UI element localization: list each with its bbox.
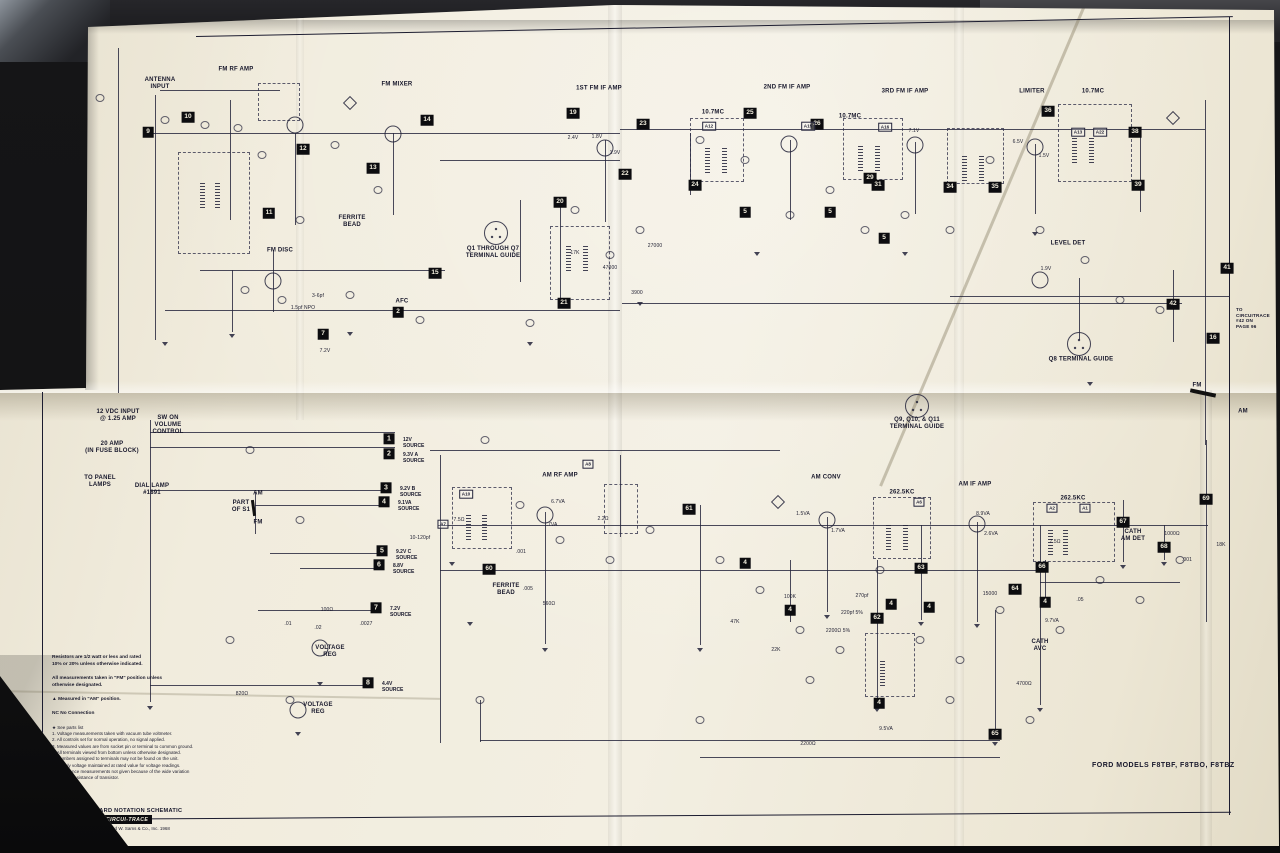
section-label-volt_reg: VOLTAGE REG bbox=[315, 645, 345, 659]
component-ref-circle bbox=[696, 716, 705, 724]
component-ref-circle bbox=[1096, 576, 1105, 584]
ground-symbol bbox=[467, 622, 473, 626]
wire bbox=[622, 303, 1182, 304]
circuitrace-callout: 60 bbox=[483, 564, 496, 575]
component-ref-circle bbox=[241, 286, 250, 294]
component-value: 1.7VA bbox=[831, 528, 845, 534]
terminal-guide-symbol bbox=[1067, 332, 1091, 356]
wire bbox=[1206, 440, 1207, 622]
photo-scene: ANTENNA INPUTFM RF AMPFM MIXER1ST FM IF … bbox=[0, 0, 1280, 853]
dashed-transformer-box bbox=[843, 118, 903, 180]
ground-symbol bbox=[317, 682, 323, 686]
component-value: .02 bbox=[314, 625, 321, 631]
source-callout-box: 5 bbox=[377, 545, 388, 556]
wire bbox=[480, 740, 1000, 741]
component-value: .0027 bbox=[359, 621, 372, 627]
coil-symbol bbox=[886, 525, 891, 551]
component-ref-circle bbox=[946, 696, 955, 704]
section-label-mc107: 10.7MC bbox=[1082, 88, 1104, 95]
circuitrace-callout: 9 bbox=[143, 127, 154, 138]
component-value: 820Ω bbox=[236, 691, 248, 697]
circuitrace-callout: 25 bbox=[744, 108, 757, 119]
circuitrace-callout: 4 bbox=[785, 605, 796, 616]
component-ref-circle bbox=[876, 566, 885, 574]
component-ref-circle bbox=[636, 226, 645, 234]
component-ref-circle bbox=[696, 136, 705, 144]
coil-symbol bbox=[1089, 138, 1094, 164]
wire bbox=[232, 270, 233, 332]
component-value: 1.5V bbox=[1039, 153, 1050, 159]
component-value: .01 bbox=[284, 621, 291, 627]
circuitrace-callout: 13 bbox=[367, 163, 380, 174]
alignment-point-box: A12 bbox=[702, 122, 716, 131]
component-ref-circle bbox=[516, 501, 525, 509]
section-label-q911: Q9, Q10, & Q11 TERMINAL GUIDE bbox=[890, 417, 944, 431]
terminal-guide-symbol bbox=[484, 221, 508, 245]
component-ref-circle bbox=[806, 676, 815, 684]
coil-symbol bbox=[979, 156, 984, 182]
ground-symbol bbox=[902, 252, 908, 256]
coil-symbol bbox=[875, 146, 880, 172]
component-value: 9.5VA bbox=[879, 726, 893, 732]
section-label-level_det: LEVEL DET bbox=[1051, 240, 1086, 247]
component-ref-circle bbox=[246, 446, 255, 454]
section-label-afc: AFC bbox=[396, 298, 409, 305]
component-value: 7.2V bbox=[320, 348, 331, 354]
wire bbox=[255, 505, 387, 506]
coil-symbol bbox=[962, 156, 967, 182]
component-ref-circle bbox=[571, 206, 580, 214]
section-label-ferrite_bead: FERRITE BEAD bbox=[338, 215, 365, 229]
photofact-title: A PHOTOFACT STANDARD NOTATION SCHEMATIC bbox=[34, 808, 182, 814]
component-ref-circle bbox=[161, 116, 170, 124]
component-ref-circle bbox=[1056, 626, 1065, 634]
section-label-fm_if2: 2ND FM IF AMP bbox=[764, 84, 811, 91]
wire bbox=[700, 505, 701, 645]
note-measurements: All measurements taken in "FM" position … bbox=[52, 676, 222, 690]
circuitrace-callout: 10 bbox=[182, 112, 195, 123]
circuitrace-callout: 22 bbox=[619, 169, 632, 180]
circuitrace-callout: 35 bbox=[989, 182, 1002, 193]
transistor-symbol bbox=[385, 126, 402, 143]
circuitrace-callout: 63 bbox=[915, 563, 928, 574]
wire bbox=[440, 570, 1040, 571]
dashed-transformer-box bbox=[865, 633, 915, 697]
component-value: 47K bbox=[730, 619, 739, 625]
section-label-fm_if1: 1ST FM IF AMP bbox=[576, 85, 622, 92]
component-ref-circle bbox=[481, 436, 490, 444]
wire bbox=[393, 133, 394, 215]
section-label-q8: Q8 TERMINAL GUIDE bbox=[1049, 356, 1114, 363]
component-ref-circle bbox=[646, 526, 655, 534]
wire bbox=[520, 200, 521, 282]
section-label-fuse: 20 AMP (IN FUSE BLOCK) bbox=[85, 441, 139, 455]
circuitrace-callout: 39 bbox=[1132, 180, 1145, 191]
section-label-fm_rf_amp: FM RF AMP bbox=[219, 66, 254, 73]
component-value: 7.1V bbox=[909, 128, 920, 134]
circuitrace-callout: 7 bbox=[318, 329, 329, 340]
component-value: 2.4V bbox=[568, 135, 579, 141]
wire bbox=[827, 517, 828, 612]
component-value: 9.7VA bbox=[1045, 618, 1059, 624]
component-ref-circle bbox=[946, 226, 955, 234]
wire bbox=[480, 700, 481, 742]
note-resistors: Resistors are 1/2 watt or less and rated… bbox=[52, 655, 222, 669]
component-value: 4700Ω bbox=[1016, 681, 1031, 687]
ground-symbol bbox=[974, 624, 980, 628]
alignment-point-box: A7 bbox=[437, 520, 448, 529]
component-ref-circle bbox=[234, 124, 243, 132]
coil-symbol bbox=[903, 525, 908, 551]
section-label-am_conv: AM CONV bbox=[811, 474, 841, 481]
alignment-point-box: A2 bbox=[1046, 504, 1057, 513]
ground-symbol bbox=[637, 302, 643, 306]
source-callout-box: 6 bbox=[374, 559, 385, 570]
component-value: 100Ω bbox=[321, 607, 333, 613]
diamond-marker bbox=[1166, 111, 1180, 125]
component-value: 7.5Ω bbox=[453, 517, 464, 523]
coil-symbol bbox=[1072, 138, 1077, 164]
coil-symbol bbox=[858, 146, 863, 172]
component-value: 3900 bbox=[631, 290, 643, 296]
component-value: 560Ω bbox=[543, 601, 555, 607]
section-label-mc107: 10.7MC bbox=[839, 113, 861, 120]
circuitrace-callout: 41 bbox=[1221, 263, 1234, 274]
coil-symbol bbox=[482, 515, 487, 541]
source-voltage-label: 9.1VA SOURCE bbox=[398, 500, 419, 512]
component-ref-circle bbox=[526, 319, 535, 327]
circuitrace-callout: 21 bbox=[558, 298, 571, 309]
alignment-point-box: A16 bbox=[878, 123, 892, 132]
section-label-fm_sm: FM bbox=[1192, 382, 1201, 389]
section-label-am_if_amp: AM IF AMP bbox=[959, 481, 992, 488]
circuitrace-callout: 66 bbox=[1036, 562, 1049, 573]
alignment-point-box: A15 bbox=[801, 122, 815, 131]
dashed-transformer-box bbox=[873, 497, 931, 559]
component-ref-circle bbox=[796, 626, 805, 634]
section-label-am_sm: AM bbox=[1238, 408, 1248, 415]
section-label-fm_if3: 3RD FM IF AMP bbox=[882, 88, 929, 95]
alignment-point-box: A10 bbox=[459, 490, 473, 499]
circuitrace-callout: 14 bbox=[421, 115, 434, 126]
component-ref-circle bbox=[861, 226, 870, 234]
component-ref-circle bbox=[836, 646, 845, 654]
ford-models-title: FORD MODELS F8TBF, F8TBO, F8TBZ bbox=[1092, 762, 1235, 769]
ground-symbol bbox=[697, 648, 703, 652]
component-ref-circle bbox=[331, 141, 340, 149]
circuitrace-callout: 4 bbox=[924, 602, 935, 613]
wire bbox=[118, 48, 119, 393]
circuitrace-callout: 4 bbox=[886, 599, 897, 610]
circuitrace-callout: 2 bbox=[393, 307, 404, 318]
source-callout-box: 7 bbox=[371, 602, 382, 613]
component-value: 15000 bbox=[983, 591, 997, 597]
component-ref-circle bbox=[346, 291, 355, 299]
component-ref-circle bbox=[1116, 296, 1125, 304]
component-value: 22K bbox=[771, 647, 780, 653]
circuitrace-callout: 65 bbox=[989, 729, 1002, 740]
component-ref-circle bbox=[956, 656, 965, 664]
wire bbox=[977, 522, 978, 622]
notes-list: ★ See parts list1. Voltage measurements … bbox=[52, 725, 222, 782]
alignment-point-box: A13 bbox=[1071, 128, 1085, 137]
component-value: 2.2Ω bbox=[597, 516, 608, 522]
component-value: 6.7VA bbox=[551, 499, 565, 505]
ground-symbol bbox=[754, 252, 760, 256]
component-ref-circle bbox=[556, 536, 565, 544]
notes-list-item: 7. Resistance measurements not given bec… bbox=[52, 769, 222, 782]
component-value: 270pf bbox=[855, 593, 868, 599]
component-ref-circle bbox=[986, 156, 995, 164]
component-ref-circle bbox=[476, 696, 485, 704]
wire bbox=[270, 553, 384, 554]
wire bbox=[1079, 278, 1080, 340]
component-value: 1.8V bbox=[592, 134, 603, 140]
circuitrace-callout: 23 bbox=[637, 119, 650, 130]
ground-symbol bbox=[1037, 708, 1043, 712]
section-label-am_sm: AM bbox=[253, 490, 263, 497]
section-label-vdc: 12 VDC INPUT @ 1.25 AMP bbox=[96, 409, 139, 423]
transistor-symbol bbox=[265, 273, 282, 290]
wire bbox=[258, 610, 378, 611]
section-label-panel: TO PANEL LAMPS bbox=[84, 475, 115, 489]
circuitrace-callout: 24 bbox=[689, 180, 702, 191]
ground-symbol bbox=[1120, 565, 1126, 569]
section-label-ferrite_bead: FERRITE BEAD bbox=[492, 583, 519, 597]
wire bbox=[150, 432, 395, 433]
circuitrace-callout: 34 bbox=[944, 182, 957, 193]
note-am-position: ▲ Measured in "AM" position. bbox=[52, 697, 222, 704]
source-voltage-label: 9.2V C SOURCE bbox=[396, 549, 417, 561]
coil-symbol bbox=[1063, 530, 1068, 556]
wire bbox=[430, 450, 780, 451]
circuitrace-callout: 4 bbox=[874, 698, 885, 709]
component-ref-circle bbox=[1081, 256, 1090, 264]
component-ref-circle bbox=[741, 156, 750, 164]
component-value: .001 bbox=[516, 549, 526, 555]
component-value: 17K bbox=[570, 250, 579, 256]
component-value: 1000Ω bbox=[1164, 531, 1179, 537]
component-value: 8.9VA bbox=[976, 511, 990, 517]
wire bbox=[700, 757, 1000, 758]
transistor-symbol bbox=[1032, 272, 1049, 289]
component-value: 2200Ω bbox=[800, 741, 815, 747]
circuitrace-callout: 16 bbox=[1207, 333, 1220, 344]
component-ref-circle bbox=[201, 121, 210, 129]
component-ref-circle bbox=[1026, 716, 1035, 724]
section-label-cath_det: CATH AM DET bbox=[1121, 529, 1145, 543]
wire bbox=[155, 95, 156, 340]
component-value: 47000 bbox=[603, 265, 617, 271]
ground-symbol bbox=[229, 334, 235, 338]
component-value: .001 bbox=[1182, 557, 1192, 563]
ground-symbol bbox=[542, 648, 548, 652]
wire bbox=[440, 160, 620, 161]
schematic-paper: ANTENNA INPUTFM RF AMPFM MIXER1ST FM IF … bbox=[0, 0, 1280, 853]
ground-symbol bbox=[824, 615, 830, 619]
circuitrace-callout: 11 bbox=[263, 208, 275, 219]
component-ref-circle bbox=[278, 296, 287, 304]
diamond-marker bbox=[343, 96, 357, 110]
ground-symbol bbox=[918, 622, 924, 626]
transistor-symbol bbox=[969, 516, 986, 533]
coil-symbol bbox=[722, 148, 727, 174]
section-label-am_rf_amp: AM RF AMP bbox=[542, 472, 578, 479]
wire bbox=[1140, 132, 1141, 212]
circuitrace-callout: 67 bbox=[1117, 517, 1130, 528]
circuitrace-callout: 69 bbox=[1200, 494, 1213, 505]
section-label-dial: DIAL LAMP #1891 bbox=[135, 483, 169, 497]
section-label-kc2625: 262.5KC bbox=[889, 489, 914, 496]
dashed-transformer-box bbox=[258, 83, 300, 121]
ground-symbol bbox=[527, 342, 533, 346]
section-label-cath_avc: CATH AVC bbox=[1031, 639, 1048, 653]
component-value: 10-120pf bbox=[410, 535, 431, 541]
component-ref-circle bbox=[606, 251, 615, 259]
circuitrace-callout: 15 bbox=[429, 268, 442, 279]
alignment-point-box: A22 bbox=[1093, 128, 1107, 137]
section-label-fm_disc: FM DISC bbox=[267, 247, 293, 254]
source-callout-box: 4 bbox=[379, 496, 390, 507]
component-value: .005 bbox=[523, 586, 533, 592]
component-value: 7.5Ω bbox=[1049, 539, 1060, 545]
alignment-point-box: A8 bbox=[582, 460, 593, 469]
transistor-symbol bbox=[819, 512, 836, 529]
component-ref-circle bbox=[1156, 306, 1165, 314]
note-nc: NC No Connection bbox=[52, 711, 222, 718]
wire bbox=[150, 490, 388, 491]
source-voltage-label: 8.8V SOURCE bbox=[393, 563, 414, 575]
section-label-part_s1: PART OF S1 bbox=[232, 500, 250, 514]
transistor-symbol bbox=[907, 137, 924, 154]
component-ref-circle bbox=[296, 516, 305, 524]
source-voltage-label: 9.3V A SOURCE bbox=[403, 452, 424, 464]
wire bbox=[150, 447, 395, 448]
component-value: .05 bbox=[1076, 597, 1083, 603]
circuitrace-note: TO CIRCUITRACE #42 ON PAGE 96 bbox=[1236, 307, 1270, 329]
transistor-symbol bbox=[537, 507, 554, 524]
component-ref-circle bbox=[901, 211, 910, 219]
transistor-symbol bbox=[287, 117, 304, 134]
ground-symbol bbox=[992, 742, 998, 746]
component-value: 1.9V bbox=[1041, 266, 1052, 272]
circuitrace-callout: 68 bbox=[1158, 542, 1171, 553]
component-value: 6.5V bbox=[1013, 139, 1024, 145]
circuitrace-callout: 4 bbox=[1040, 597, 1051, 608]
coil-symbol bbox=[880, 661, 885, 687]
component-value: 1.5VA bbox=[796, 511, 810, 517]
transistor-symbol bbox=[781, 136, 798, 153]
copyright-line: © Howard W. Sams & Co., Inc. 1968 bbox=[97, 826, 170, 831]
dashed-transformer-box bbox=[550, 226, 610, 300]
dashed-transformer-box bbox=[1033, 502, 1115, 562]
component-value: 100K bbox=[784, 594, 796, 600]
component-ref-circle bbox=[716, 556, 725, 564]
dashed-transformer-box bbox=[178, 152, 250, 254]
wire bbox=[440, 455, 441, 743]
circuitrace-callout: 5 bbox=[825, 207, 836, 218]
component-value: .7VA bbox=[547, 522, 558, 528]
component-ref-circle bbox=[996, 606, 1005, 614]
circuitrace-callout: 64 bbox=[1009, 584, 1022, 595]
component-ref-circle bbox=[258, 151, 267, 159]
wire bbox=[1040, 582, 1180, 583]
alignment-point-box: A1 bbox=[1079, 504, 1090, 513]
ground-symbol bbox=[1161, 562, 1167, 566]
source-callout-box: 1 bbox=[384, 433, 395, 444]
circuitrace-callout: 38 bbox=[1129, 127, 1142, 138]
coil-symbol bbox=[215, 183, 220, 209]
ground-symbol bbox=[874, 708, 880, 712]
circuitrace-callout: 62 bbox=[871, 613, 884, 624]
band-switch-bar bbox=[1190, 388, 1216, 397]
component-value: 220pf 5% bbox=[841, 610, 863, 616]
circuitrace-callout: 42 bbox=[1167, 299, 1180, 310]
wire bbox=[300, 568, 382, 569]
dashed-transformer-box bbox=[690, 118, 744, 182]
component-value: 1.9V bbox=[610, 150, 621, 156]
circuitrace-badge: CIRCUI-TRACE bbox=[102, 815, 152, 824]
component-ref-circle bbox=[226, 636, 235, 644]
ground-symbol bbox=[1032, 232, 1038, 236]
source-callout-box: 8 bbox=[363, 677, 374, 688]
component-ref-circle bbox=[374, 186, 383, 194]
component-value: 2200Ω 5% bbox=[826, 628, 850, 634]
wire bbox=[545, 512, 546, 644]
terminal-guide-symbol bbox=[905, 394, 929, 418]
alignment-point-box: A6 bbox=[913, 498, 924, 507]
coil-symbol bbox=[583, 246, 588, 272]
source-voltage-label: 7.2V SOURCE bbox=[390, 606, 411, 618]
component-value: 3-6pf bbox=[312, 293, 324, 299]
circuitrace-callout: 61 bbox=[683, 504, 696, 515]
circuitrace-callout: 4 bbox=[740, 558, 751, 569]
ground-symbol bbox=[295, 732, 301, 736]
component-ref-circle bbox=[756, 586, 765, 594]
diamond-marker bbox=[771, 495, 785, 509]
photofact-with: with bbox=[88, 818, 98, 823]
source-voltage-label: 12V SOURCE bbox=[403, 437, 424, 449]
circuitrace-callout: 12 bbox=[297, 144, 310, 155]
circuitrace-callout: 5 bbox=[740, 207, 751, 218]
component-value: 2.6VA bbox=[984, 531, 998, 537]
circuitrace-callout: 19 bbox=[567, 108, 580, 119]
ground-symbol bbox=[1087, 382, 1093, 386]
dashed-transformer-box bbox=[1058, 104, 1132, 182]
schematic-notes: Resistors are 1/2 watt or less and rated… bbox=[52, 655, 222, 781]
circuitrace-callout: 36 bbox=[1042, 106, 1055, 117]
source-callout-box: 2 bbox=[384, 448, 395, 459]
component-ref-circle bbox=[296, 216, 305, 224]
coil-symbol bbox=[200, 183, 205, 209]
wire bbox=[995, 610, 996, 738]
ground-symbol bbox=[347, 332, 353, 336]
component-ref-circle bbox=[826, 186, 835, 194]
component-value: 18K bbox=[1216, 542, 1225, 548]
ground-symbol bbox=[162, 342, 168, 346]
coil-symbol bbox=[466, 515, 471, 541]
section-label-kc2625: 262.5KC bbox=[1060, 495, 1085, 502]
section-label-q1q7: Q1 THROUGH Q7 TERMINAL GUIDE bbox=[466, 246, 520, 260]
component-value: 27000 bbox=[648, 243, 662, 249]
component-ref-circle bbox=[786, 211, 795, 219]
component-ref-circle bbox=[916, 636, 925, 644]
circuitrace-callout: 5 bbox=[879, 233, 890, 244]
section-label-fm_mixer: FM MIXER bbox=[382, 81, 413, 88]
component-ref-circle bbox=[606, 556, 615, 564]
section-label-volt_reg: VOLTAGE REG bbox=[303, 702, 333, 716]
component-ref-circle bbox=[1136, 596, 1145, 604]
